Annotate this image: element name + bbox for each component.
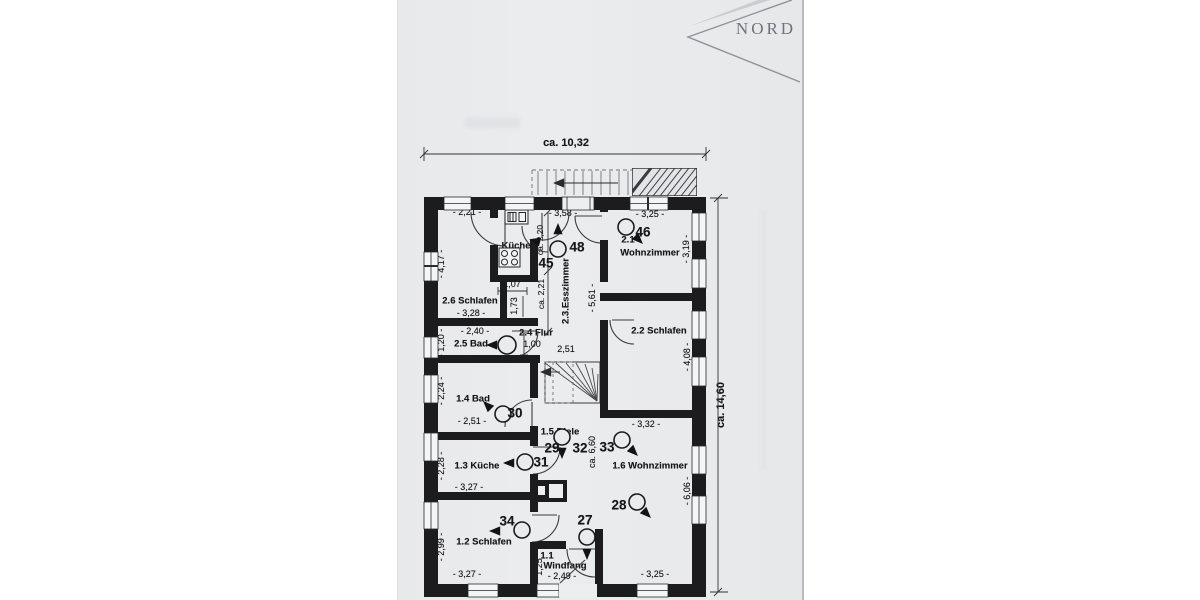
interior-stairs <box>540 362 600 403</box>
windows <box>424 197 706 597</box>
marker-number-33: 33 <box>599 440 614 455</box>
marker-circle-bad25 <box>498 336 516 354</box>
dimension-lines <box>420 147 728 596</box>
marker-number-27: 27 <box>577 513 592 528</box>
stove-icon <box>499 248 520 267</box>
north-arrow <box>682 0 800 82</box>
marker-direction-arrows <box>480 223 654 560</box>
walls <box>424 197 706 597</box>
chimney <box>533 480 567 502</box>
marker-number-28: 28 <box>611 498 626 513</box>
marker-number-34: 34 <box>499 514 514 529</box>
kitchen-sink-icon <box>505 210 528 224</box>
marker-circle-34 <box>514 522 530 538</box>
marker-number-48: 48 <box>569 240 584 255</box>
floorplan-drawing <box>0 0 1200 600</box>
marker-circle-27 <box>579 529 595 545</box>
marker-number-32: 32 <box>572 441 587 456</box>
marker-number-31: 31 <box>533 455 548 470</box>
marker-circle-28 <box>629 494 645 510</box>
marker-circle-33 <box>614 432 630 448</box>
exterior-stairs <box>532 168 710 196</box>
marker-number-46: 46 <box>635 225 650 240</box>
photo-markers <box>480 219 654 560</box>
marker-number-45: 45 <box>538 256 553 271</box>
scanned-floorplan-page: NORD ca. 10,32 ca. 14,60 - 2,21 - - 4,17… <box>0 0 1200 600</box>
marker-circle-46 <box>618 219 634 235</box>
marker-number-29: 29 <box>544 441 559 456</box>
marker-number-30: 30 <box>507 406 522 421</box>
marker-circle-31 <box>517 454 533 470</box>
